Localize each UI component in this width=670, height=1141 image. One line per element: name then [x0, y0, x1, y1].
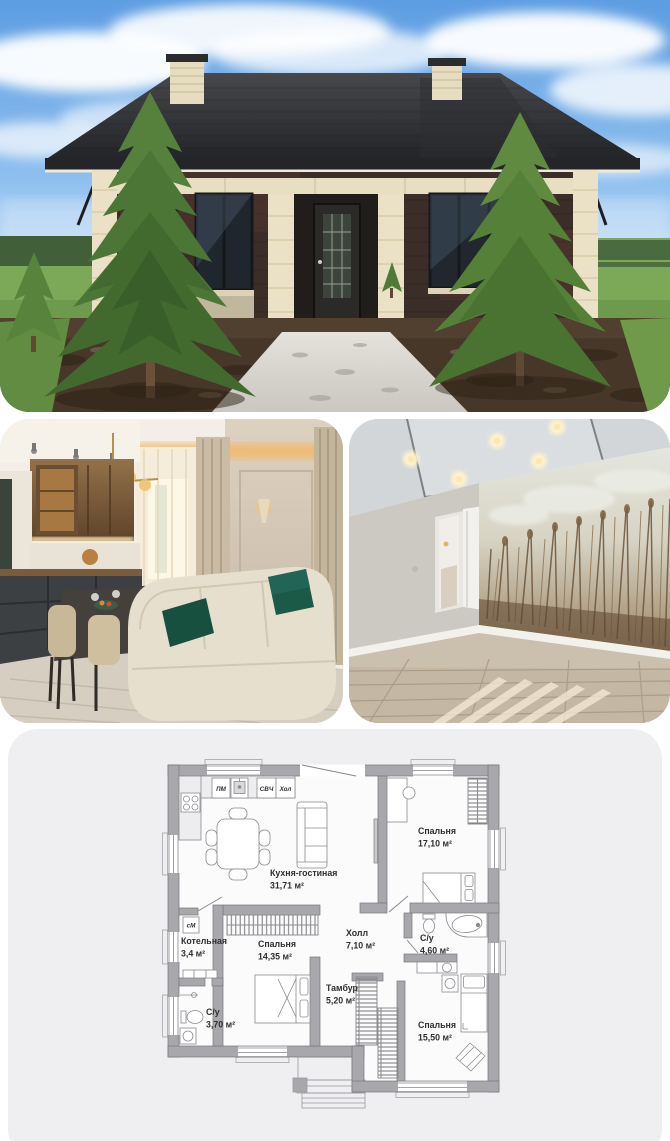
room-label-name: С/у — [206, 1007, 220, 1017]
room-label-area: 5,20 м² — [326, 996, 355, 1006]
appliance-label: сМ — [187, 923, 197, 930]
room-label-area: 3,70 м² — [206, 1020, 235, 1030]
room-label-area: 15,50 м² — [418, 1033, 452, 1043]
room-label-name: С/у — [420, 933, 434, 943]
photo-living-room[interactable] — [0, 419, 343, 723]
appliance-label: СВЧ — [260, 786, 274, 793]
room-label-name: Котельная — [181, 936, 227, 946]
room-label-area: 3,4 м² — [181, 949, 205, 959]
room-label-name: Спальня — [258, 939, 296, 949]
photo-house-exterior[interactable] — [0, 0, 670, 412]
mural-wall — [479, 447, 670, 651]
floor-plan: Кухня-гостиная31,71 м²Спальня17,10 м²Хол… — [150, 745, 530, 1141]
appliance-label: ПМ — [216, 786, 227, 793]
room-label-name: Спальня — [418, 826, 456, 836]
house-exterior-illustration — [0, 0, 670, 412]
room-label-name: Спальня — [418, 1020, 456, 1030]
sofa — [128, 567, 336, 721]
floor-plan-card[interactable]: Кухня-гостиная31,71 м²Спальня17,10 м²Хол… — [8, 729, 662, 1141]
front-door — [314, 204, 360, 326]
room-label-name: Холл — [346, 928, 368, 938]
room-label-name: Тамбур — [326, 983, 359, 993]
room-label-area: 17,10 м² — [418, 839, 452, 849]
room-label-area: 14,35 м² — [258, 952, 292, 962]
room-label-area: 4,60 м² — [420, 946, 449, 956]
upper-cabinets — [30, 459, 134, 542]
appliance-label: Хол — [279, 786, 292, 793]
room-label-area: 31,71 м² — [270, 881, 304, 891]
ceiling-lights — [0, 419, 140, 464]
room-label-area: 7,10 м² — [346, 941, 375, 951]
photo-empty-room-mural[interactable] — [349, 419, 670, 723]
listing-gallery: Кухня-гостиная31,71 м²Спальня17,10 м²Хол… — [0, 0, 670, 1141]
room-label-name: Кухня-гостиная — [270, 868, 337, 878]
empty-room-illustration — [349, 419, 670, 723]
living-room-illustration — [0, 419, 343, 723]
